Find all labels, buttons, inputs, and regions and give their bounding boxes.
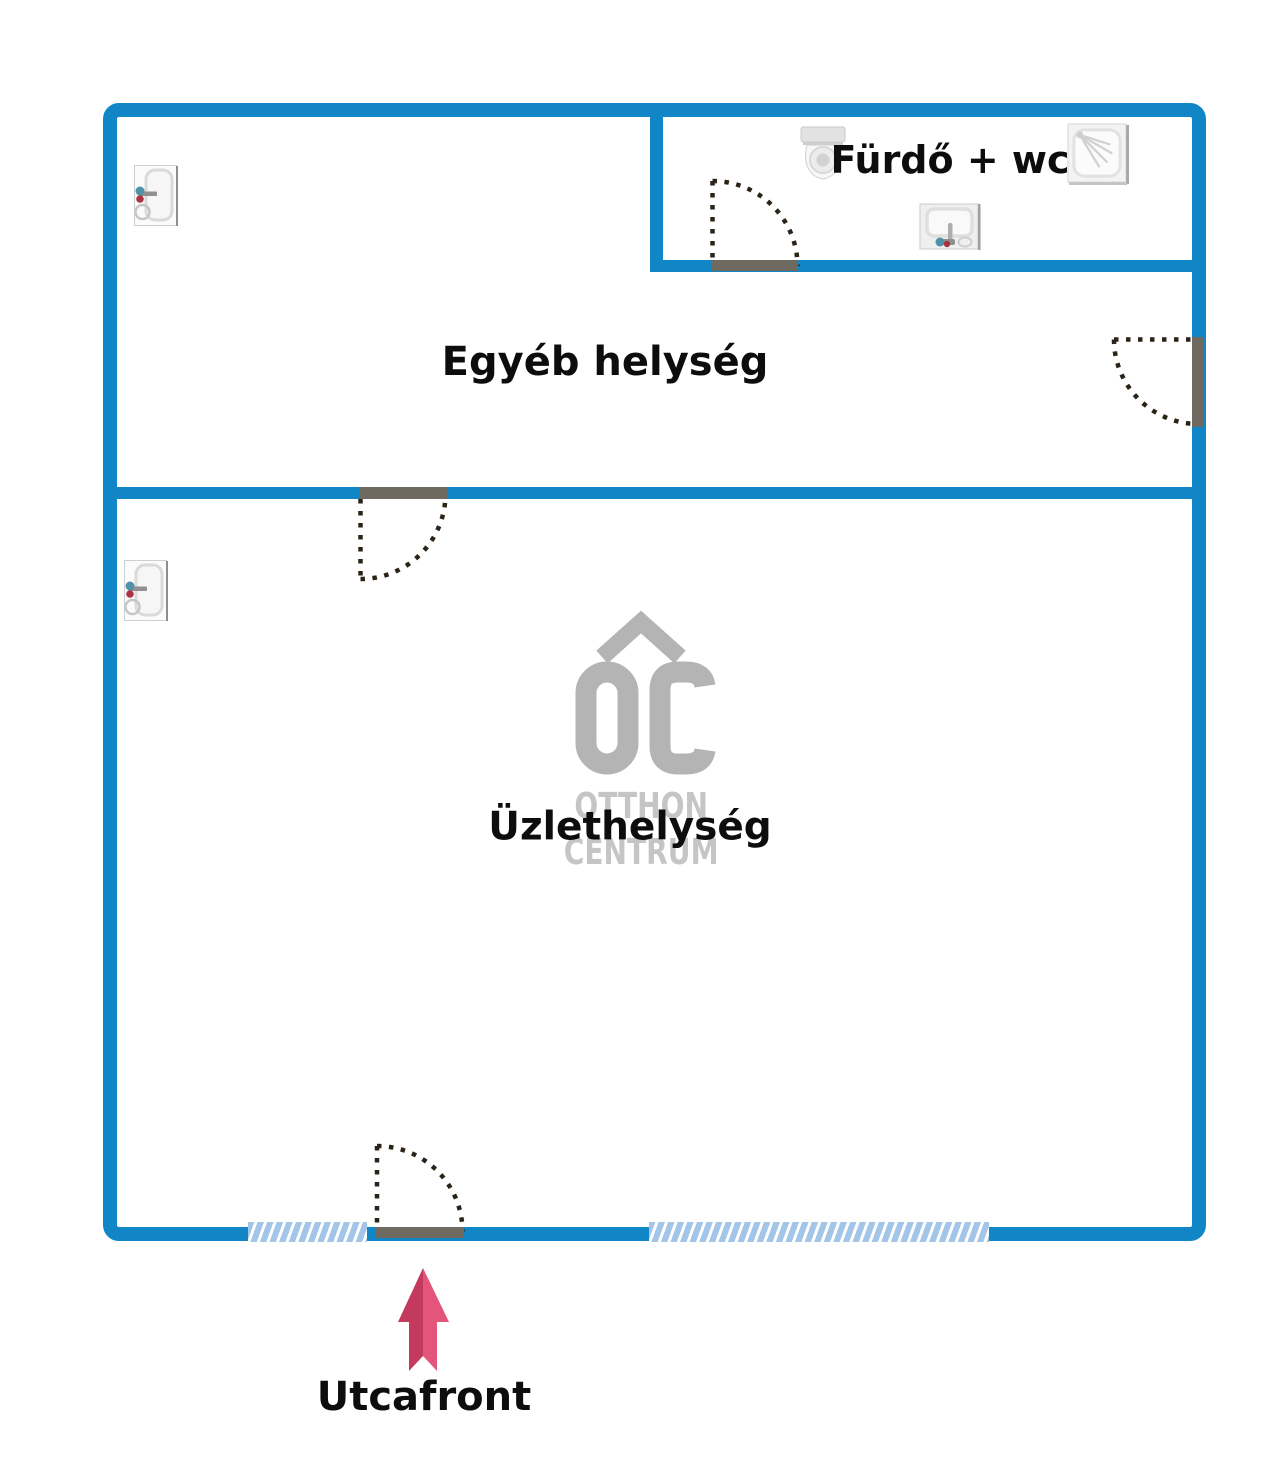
sink-icon bbox=[919, 203, 981, 251]
street-front-label: Utcafront bbox=[317, 1374, 532, 1420]
room-label-bathroom: Fürdő + wc bbox=[830, 138, 1069, 182]
shower-icon bbox=[1067, 123, 1130, 186]
room-label-other-room: Egyéb helység bbox=[442, 339, 769, 385]
door-leaf bbox=[359, 487, 448, 499]
door-swing-arc bbox=[377, 1146, 463, 1232]
door-icon bbox=[123, 560, 169, 622]
door-right-wall bbox=[1114, 337, 1204, 427]
door-swing-arc bbox=[713, 181, 798, 266]
door-leaf bbox=[1192, 337, 1204, 427]
plan-overlay: OTTHON CENTRUM bbox=[0, 0, 1280, 1480]
door-street-entrance bbox=[375, 1146, 464, 1238]
floor-plan: OTTHON CENTRUM bbox=[0, 0, 1280, 1480]
door-icon bbox=[133, 165, 179, 227]
door-swing-arc bbox=[1114, 340, 1199, 425]
door-leaf bbox=[375, 1227, 464, 1238]
logo-monogram-oc bbox=[586, 672, 705, 764]
room-label-shop: Üzlethelység bbox=[488, 805, 771, 850]
door-bathroom bbox=[711, 181, 798, 271]
door-between-rooms bbox=[359, 487, 448, 579]
door-swing-arc bbox=[361, 494, 446, 579]
door-leaf bbox=[711, 260, 798, 271]
logo-roof-chevron bbox=[602, 622, 680, 657]
arrow-up-icon bbox=[398, 1268, 449, 1371]
